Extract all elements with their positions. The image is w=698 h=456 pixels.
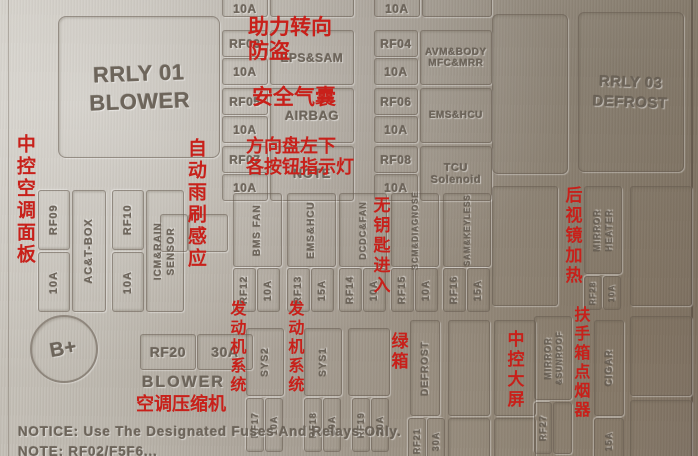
empty-grid-cell <box>630 400 692 456</box>
fuse-rf28-label-line1: MIRROR <box>592 209 602 252</box>
fuse-rf21-amp: 30A <box>427 418 445 456</box>
fuse-cigar-label: CIGAR <box>594 320 624 416</box>
fuse-rf16-amp: 15A <box>467 268 490 312</box>
fuse-rf21-label-text: DEFROST <box>420 341 431 396</box>
relay-rrly01-id: RRLY 01 <box>88 58 190 89</box>
fuse-rf14-label-text: DCDC&FAN <box>358 201 368 260</box>
empty-grid-cell <box>448 320 490 416</box>
relay-rrly01-box: RRLY 01 BLOWER <box>58 16 220 158</box>
fuse-rf27-label: MIRROR &SUNROOF <box>534 316 572 400</box>
fuse-rf09-label-text: AC&T-BOX <box>83 218 95 283</box>
fuse-rf20-amp: 30A <box>197 334 253 370</box>
fuse-rf08-label-line1: TCU <box>431 162 481 174</box>
fuse-partial-amp-left: 10A <box>222 0 268 17</box>
empty-grid-cell <box>492 186 558 306</box>
annotation-armrest-cigar: 扶手箱点烟器 <box>570 306 588 420</box>
fuse-rf04-amp: 10A <box>374 58 418 85</box>
battery-terminal-mark: B+ <box>30 315 98 383</box>
fuse-rf18-label-text: SYS1 <box>318 347 329 377</box>
fuse-rf06-id: RF06 <box>374 88 418 115</box>
empty-grid-cell <box>448 418 490 456</box>
fuse-rf13-label-text: EMS&HCU <box>306 201 317 259</box>
fuse-rf15-label-text: BCM&DIAGNOSE <box>411 191 420 270</box>
fuse-rf06-amp: 10A <box>374 116 418 143</box>
notice-line-2: NOTE: RF02/F5F6... <box>18 444 158 456</box>
relay-rrly03-box: RRLY 03 DEFROST <box>578 12 684 172</box>
annotation-steering-buttons-line2: 各按钮指示灯 <box>246 157 354 178</box>
fuse-rf04-id: RF04 <box>374 30 418 57</box>
fuse-rf13-label: EMS&HCU <box>287 193 336 267</box>
fuse-rf27-id: RF27 <box>534 402 552 454</box>
annotation-power-steering-line1: 助力转向 <box>248 16 332 40</box>
fuse-rf13-amp: 15A <box>311 268 334 312</box>
fuse-partial-label-left <box>270 0 354 17</box>
fuse-cigar-label-text: CIGAR <box>604 349 615 386</box>
fuse-rf21-id: RF21 <box>408 418 426 456</box>
fuse-rf27-label-line1: MIRROR <box>543 337 553 380</box>
fuse-rf08-label-line2: Solenoid <box>431 174 481 186</box>
fuse-rf28-label-line2: HEATER <box>604 209 614 251</box>
fuse-rf15-id: RF15 <box>391 268 414 312</box>
fuse-rf16-label-text: SAM&KEYLESS <box>463 194 472 266</box>
fuse-rf06-label: EMS&HCU <box>420 88 492 143</box>
fuse-rf17-label-text: SYS2 <box>260 347 271 377</box>
annotation-mirror-heating: 后视镜加热 <box>562 186 582 286</box>
fuse-rf15-label: BCM&DIAGNOSE <box>391 193 439 267</box>
fuse-rf18-label: SYS1 <box>304 328 342 396</box>
fuse-rf14-id: RF14 <box>339 268 362 312</box>
relay-rrly01-label: BLOWER <box>89 85 191 116</box>
panel-edge-left <box>8 0 9 456</box>
fuse-box-cover-panel: RRLY 01 BLOWER 10A 10A RF03 10A EPS&SAM … <box>0 0 698 456</box>
fuse-cigar-amp: 15A <box>594 418 624 456</box>
annotation-green-box: 绿箱 <box>388 332 408 372</box>
relay-rrly02-box <box>492 14 568 174</box>
annotation-keyless: 无钥匙进入 <box>370 196 390 296</box>
fuse-partial-amp-right: 10A <box>374 0 420 17</box>
annotation-power-steering: 助力转向 防盗 <box>248 16 332 64</box>
fuse-rf10-amp: 10A <box>112 252 144 312</box>
fuse-rf10-id: RF10 <box>112 190 144 250</box>
empty-grid-cell <box>630 316 692 396</box>
battery-terminal-label: B+ <box>49 335 80 362</box>
relay-rrly03-id: RRLY 03 <box>593 71 669 93</box>
fuse-rf17-label: SYS2 <box>246 328 284 396</box>
annotation-power-steering-line2: 防盗 <box>248 40 332 64</box>
fuse-rf27-label-line2: &SUNROOF <box>555 331 564 385</box>
fuse-rf04-label-line2: MFC&MRR <box>425 58 487 69</box>
blower-label: BLOWER <box>142 374 225 392</box>
annotation-steering-buttons-line1: 方向盘左下 <box>246 136 354 157</box>
fuse-rf09-label: AC&T-BOX <box>72 190 106 312</box>
empty-slot-box <box>348 328 390 396</box>
fuse-partial-label-right <box>422 0 492 17</box>
fuse-rf16-id: RF16 <box>443 268 466 312</box>
fuse-rf28-label: MIRROR HEATER <box>584 186 622 274</box>
fuse-rf04-label: AVM&BODYMFC&MRR <box>420 30 492 85</box>
fuse-rf09-id: RF09 <box>38 190 70 250</box>
fuse-rf09-amp: 10A <box>38 252 70 312</box>
fuse-rf12-label: BMS FAN <box>233 193 282 267</box>
fuse-rf12-amp: 10A <box>257 268 280 312</box>
empty-grid-cell <box>630 186 692 306</box>
fuse-rf28-id: RF28 <box>584 276 602 310</box>
fuse-rf20-id: RF20 <box>140 334 196 370</box>
annotation-auto-wiper: 自动雨刷感应 <box>184 138 206 270</box>
fuse-rf04-label-line1: AVM&BODY <box>425 47 487 58</box>
annotation-ac-compressor: 空调压缩机 <box>136 394 226 415</box>
fuse-rf16-label: SAM&KEYLESS <box>443 193 491 267</box>
annotation-center-screen: 中控大屏 <box>504 330 524 410</box>
annotation-engine-system-b: 发动机系统 <box>284 300 302 395</box>
fuse-rf28-amp: 10A <box>603 276 621 310</box>
notice-line-1: NOTICE: Use The Designated Fuses And Rel… <box>18 424 402 439</box>
annotation-engine-system-a: 发动机系统 <box>226 300 244 395</box>
fuse-rf15-amp: 10A <box>415 268 438 312</box>
annotation-airbag: 安全气囊 <box>252 86 336 110</box>
empty-grid-cell <box>494 418 536 456</box>
fuse-rf21-label: DEFROST <box>410 320 440 416</box>
relay-rrly03-label: DEFROST <box>593 91 669 113</box>
annotation-ac-panel: 中控空调面板 <box>13 134 35 266</box>
annotation-steering-buttons: 方向盘左下 各按钮指示灯 <box>246 136 354 177</box>
fuse-rf08-id: RF08 <box>374 146 418 173</box>
fuse-rf12-label-text: BMS FAN <box>252 204 263 256</box>
